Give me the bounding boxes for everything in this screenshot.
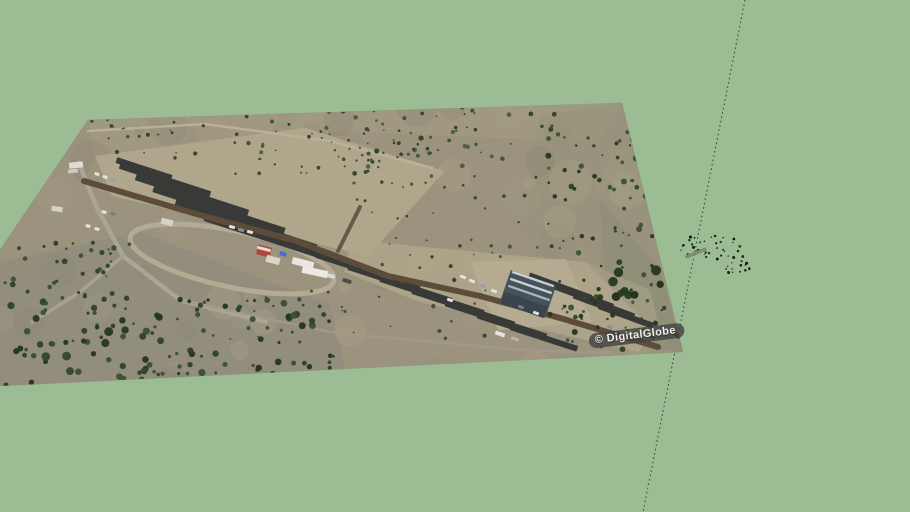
aerial-imagery-plane[interactable] [0,84,692,397]
3d-viewport-canvas[interactable] [0,0,910,512]
3d-viewer-viewport: © DigitalGlobe [0,0,910,512]
distant-vegetation-marks [680,235,750,274]
